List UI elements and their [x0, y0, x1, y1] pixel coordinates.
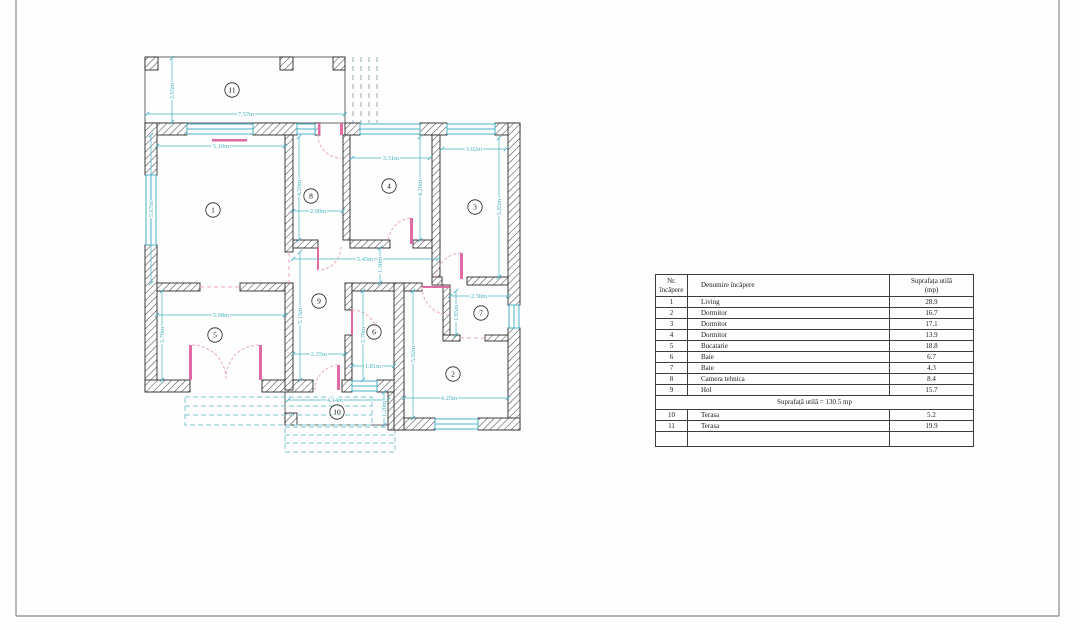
cell-room-number: 5 [656, 341, 688, 352]
room-number: 3 [468, 200, 482, 214]
dimension-label: 3.70m [360, 327, 367, 343]
cell-room-name: Terasa [688, 421, 890, 432]
window [352, 381, 377, 391]
room-number: 7 [474, 306, 488, 320]
cell-room-area: 8.4 [890, 374, 974, 385]
dimension-label: 4.14m [327, 397, 343, 404]
table-row: 6Baie6.7 [656, 352, 974, 363]
cell-room-name: Hol [688, 385, 890, 396]
wall [394, 283, 404, 430]
dimension-label: 1.85m [453, 305, 460, 321]
summary-total-area: Suprafață utilă = 130.5 mp [656, 396, 974, 410]
dimension: 4.25m [402, 395, 510, 402]
dimension-label: 1.30m [377, 257, 384, 273]
cell-room-number: 3 [656, 319, 688, 330]
wall [285, 283, 293, 390]
dimension: 1.81m [350, 363, 396, 370]
cell-room-area: 18.8 [890, 341, 974, 352]
room-number: 6 [367, 325, 381, 339]
room-number-label: 3 [473, 203, 477, 212]
wall [432, 135, 440, 277]
door-entrance-terrace11 [318, 123, 343, 158]
dimension: 5.15m [297, 250, 304, 382]
dimension-label: 5.65m [496, 199, 503, 215]
room-number: 4 [382, 179, 396, 193]
table-row: 8Camera tehnica8.4 [656, 374, 974, 385]
wall [345, 283, 352, 310]
dimension: 4.14m [286, 397, 390, 404]
header-nr: Nr. încăpere [656, 275, 688, 297]
empty-cell [688, 432, 890, 447]
room-number-label: 6 [372, 328, 376, 337]
wall [350, 240, 390, 248]
doors-layer [189, 123, 463, 390]
window [360, 124, 420, 134]
wall [343, 135, 350, 240]
table-row: 10Terasa5.2 [656, 410, 974, 421]
dimension: 2.30m [448, 293, 510, 300]
walls-layer [145, 123, 520, 430]
dimension-label: 5.02m [410, 346, 417, 362]
room-number: 11 [225, 83, 239, 97]
dimension: 5.45m [291, 256, 440, 263]
cell-room-number: 4 [656, 330, 688, 341]
cell-room-area: 13.9 [890, 330, 974, 341]
dimension-label: 5.10m [213, 143, 229, 150]
cell-room-area: 28.9 [890, 297, 974, 308]
cell-room-number: 2 [656, 308, 688, 319]
dimension-label: 3.70m [159, 327, 166, 343]
header-area: Suprafața utilă (mp) [890, 275, 974, 297]
dimension-label: 4.20m [296, 180, 303, 196]
wall [508, 328, 520, 430]
drawing-sheet: 2.65m7.57m5.10m5.67m4.20m2.00m3.31m4.20m… [0, 0, 1080, 630]
room-number-label: 4 [387, 182, 391, 191]
room-number-label: 7 [479, 309, 483, 318]
dimension: 5.02m [410, 289, 417, 420]
wall [342, 380, 352, 392]
post [145, 57, 158, 70]
table-row: 11Terasa19.9 [656, 421, 974, 432]
wall [443, 285, 450, 335]
table-row: 4Dormitor13.9 [656, 330, 974, 341]
room-number-label: 5 [213, 331, 217, 340]
cell-room-area: 19.9 [890, 421, 974, 432]
windows-layer [146, 124, 519, 429]
wall [443, 335, 460, 341]
cell-room-number: 1 [656, 297, 688, 308]
table-row: 5Bucatarie18.8 [656, 341, 974, 352]
dimension-label: 5.08m [213, 312, 229, 319]
cell-room-number: 10 [656, 410, 688, 421]
room-number-label: 10 [333, 408, 341, 417]
dimension: 5.65m [496, 136, 503, 279]
dimension: 3.02m [440, 146, 508, 153]
room-number-label: 9 [317, 297, 321, 306]
room-number: 10 [330, 405, 344, 419]
dimension-label: 4.25m [441, 395, 457, 402]
room-number-label: 11 [228, 86, 235, 95]
wall [345, 335, 352, 380]
dimension: 5.08m [155, 312, 287, 319]
window [297, 124, 315, 134]
empty-cell [656, 432, 688, 447]
room-number: 9 [312, 294, 326, 308]
table-empty-row [656, 432, 974, 447]
cell-room-name: Camera tehnica [688, 374, 890, 385]
table-row: 7Baie4.3 [656, 363, 974, 374]
wall [508, 123, 520, 305]
room-number-label: 1 [211, 206, 215, 215]
wall [352, 283, 394, 291]
door-room4 [388, 218, 413, 244]
cell-room-area: 17.1 [890, 319, 974, 330]
cell-room-area: 4.3 [890, 363, 974, 374]
window [187, 124, 253, 134]
wall [432, 277, 442, 285]
window [509, 305, 519, 328]
window [447, 124, 495, 134]
wall [420, 123, 447, 135]
cell-room-area: 15.7 [890, 385, 974, 396]
radiator [212, 139, 247, 142]
wall [467, 277, 508, 285]
post [280, 57, 293, 70]
dimension-label: 5.45m [357, 256, 373, 263]
door-terrace10 [315, 365, 340, 390]
wall [485, 335, 508, 341]
room-number: 2 [446, 367, 460, 381]
dimension: 1.30m [377, 246, 384, 285]
openings-layer [200, 252, 485, 338]
dimension-label: 1.81m [365, 363, 381, 370]
cell-room-number: 8 [656, 374, 688, 385]
cell-room-number: 9 [656, 385, 688, 396]
cell-room-area: 16.7 [890, 308, 974, 319]
dimension-label: 1.20m [381, 401, 388, 417]
cell-room-number: 11 [656, 421, 688, 432]
wall [253, 123, 297, 135]
steps-top [353, 57, 377, 123]
empty-cell [890, 432, 974, 447]
header-name: Denumire încăpere [688, 275, 890, 297]
wall [345, 123, 360, 135]
post [333, 57, 345, 70]
room-number: 8 [304, 189, 318, 203]
cell-room-name: Living [688, 297, 890, 308]
cell-room-name: Baie [688, 363, 890, 374]
cell-room-name: Dormitor [688, 330, 890, 341]
wall [478, 418, 520, 430]
dimension: 4.20m [417, 135, 424, 242]
dimension-label: 2.65m [169, 83, 176, 99]
dimension-label: 3.31m [383, 155, 399, 162]
table-row: 1Living28.9 [656, 297, 974, 308]
cell-room-name: Baie [688, 352, 890, 363]
wall [293, 240, 318, 248]
table-row: 2Dormitor16.7 [656, 308, 974, 319]
cell-room-area: 6.7 [890, 352, 974, 363]
dimension-label: 4.20m [417, 180, 424, 196]
room-number-label: 2 [451, 370, 455, 379]
dimension-label: 5.67m [148, 201, 155, 217]
table-row: 3Dormitor17.1 [656, 319, 974, 330]
dimension-label: 5.15m [297, 308, 304, 324]
dimension: 7.57m [145, 111, 347, 118]
door-french-room5 [189, 345, 262, 380]
room-number: 1 [206, 203, 220, 217]
room-schedule-table: Nr. încăpere Denumire încăpere Suprafața… [655, 274, 974, 447]
dimension: 5.10m [155, 143, 287, 150]
room-number: 5 [208, 328, 222, 342]
dimension-label: 2.00m [310, 208, 326, 215]
window [435, 419, 478, 429]
table-row: 9Hol15.7 [656, 385, 974, 396]
dimension-label: 2.25m [311, 351, 327, 358]
dimension: 2.25m [291, 351, 347, 358]
door-room8 [318, 247, 341, 270]
wall [145, 380, 190, 392]
dimension: 4.20m [296, 135, 303, 242]
cell-room-number: 6 [656, 352, 688, 363]
cell-room-number: 7 [656, 363, 688, 374]
cell-room-name: Dormitor [688, 308, 890, 319]
dimension-label: 7.57m [238, 111, 254, 118]
wall [285, 135, 293, 252]
dimension-label: 2.30m [471, 293, 487, 300]
dimension: 3.70m [159, 289, 166, 382]
cell-room-name: Terasa [688, 410, 890, 421]
table-summary-row: Suprafață utilă = 130.5 mp [656, 396, 974, 410]
table-header-row: Nr. încăpere Denumire încăpere Suprafața… [656, 275, 974, 297]
dimension: 1.20m [381, 390, 388, 427]
cell-room-name: Dormitor [688, 319, 890, 330]
room-number-label: 8 [309, 192, 313, 201]
dimension-label: 3.02m [466, 146, 482, 153]
cell-room-name: Bucatarie [688, 341, 890, 352]
cell-room-area: 5.2 [890, 410, 974, 421]
